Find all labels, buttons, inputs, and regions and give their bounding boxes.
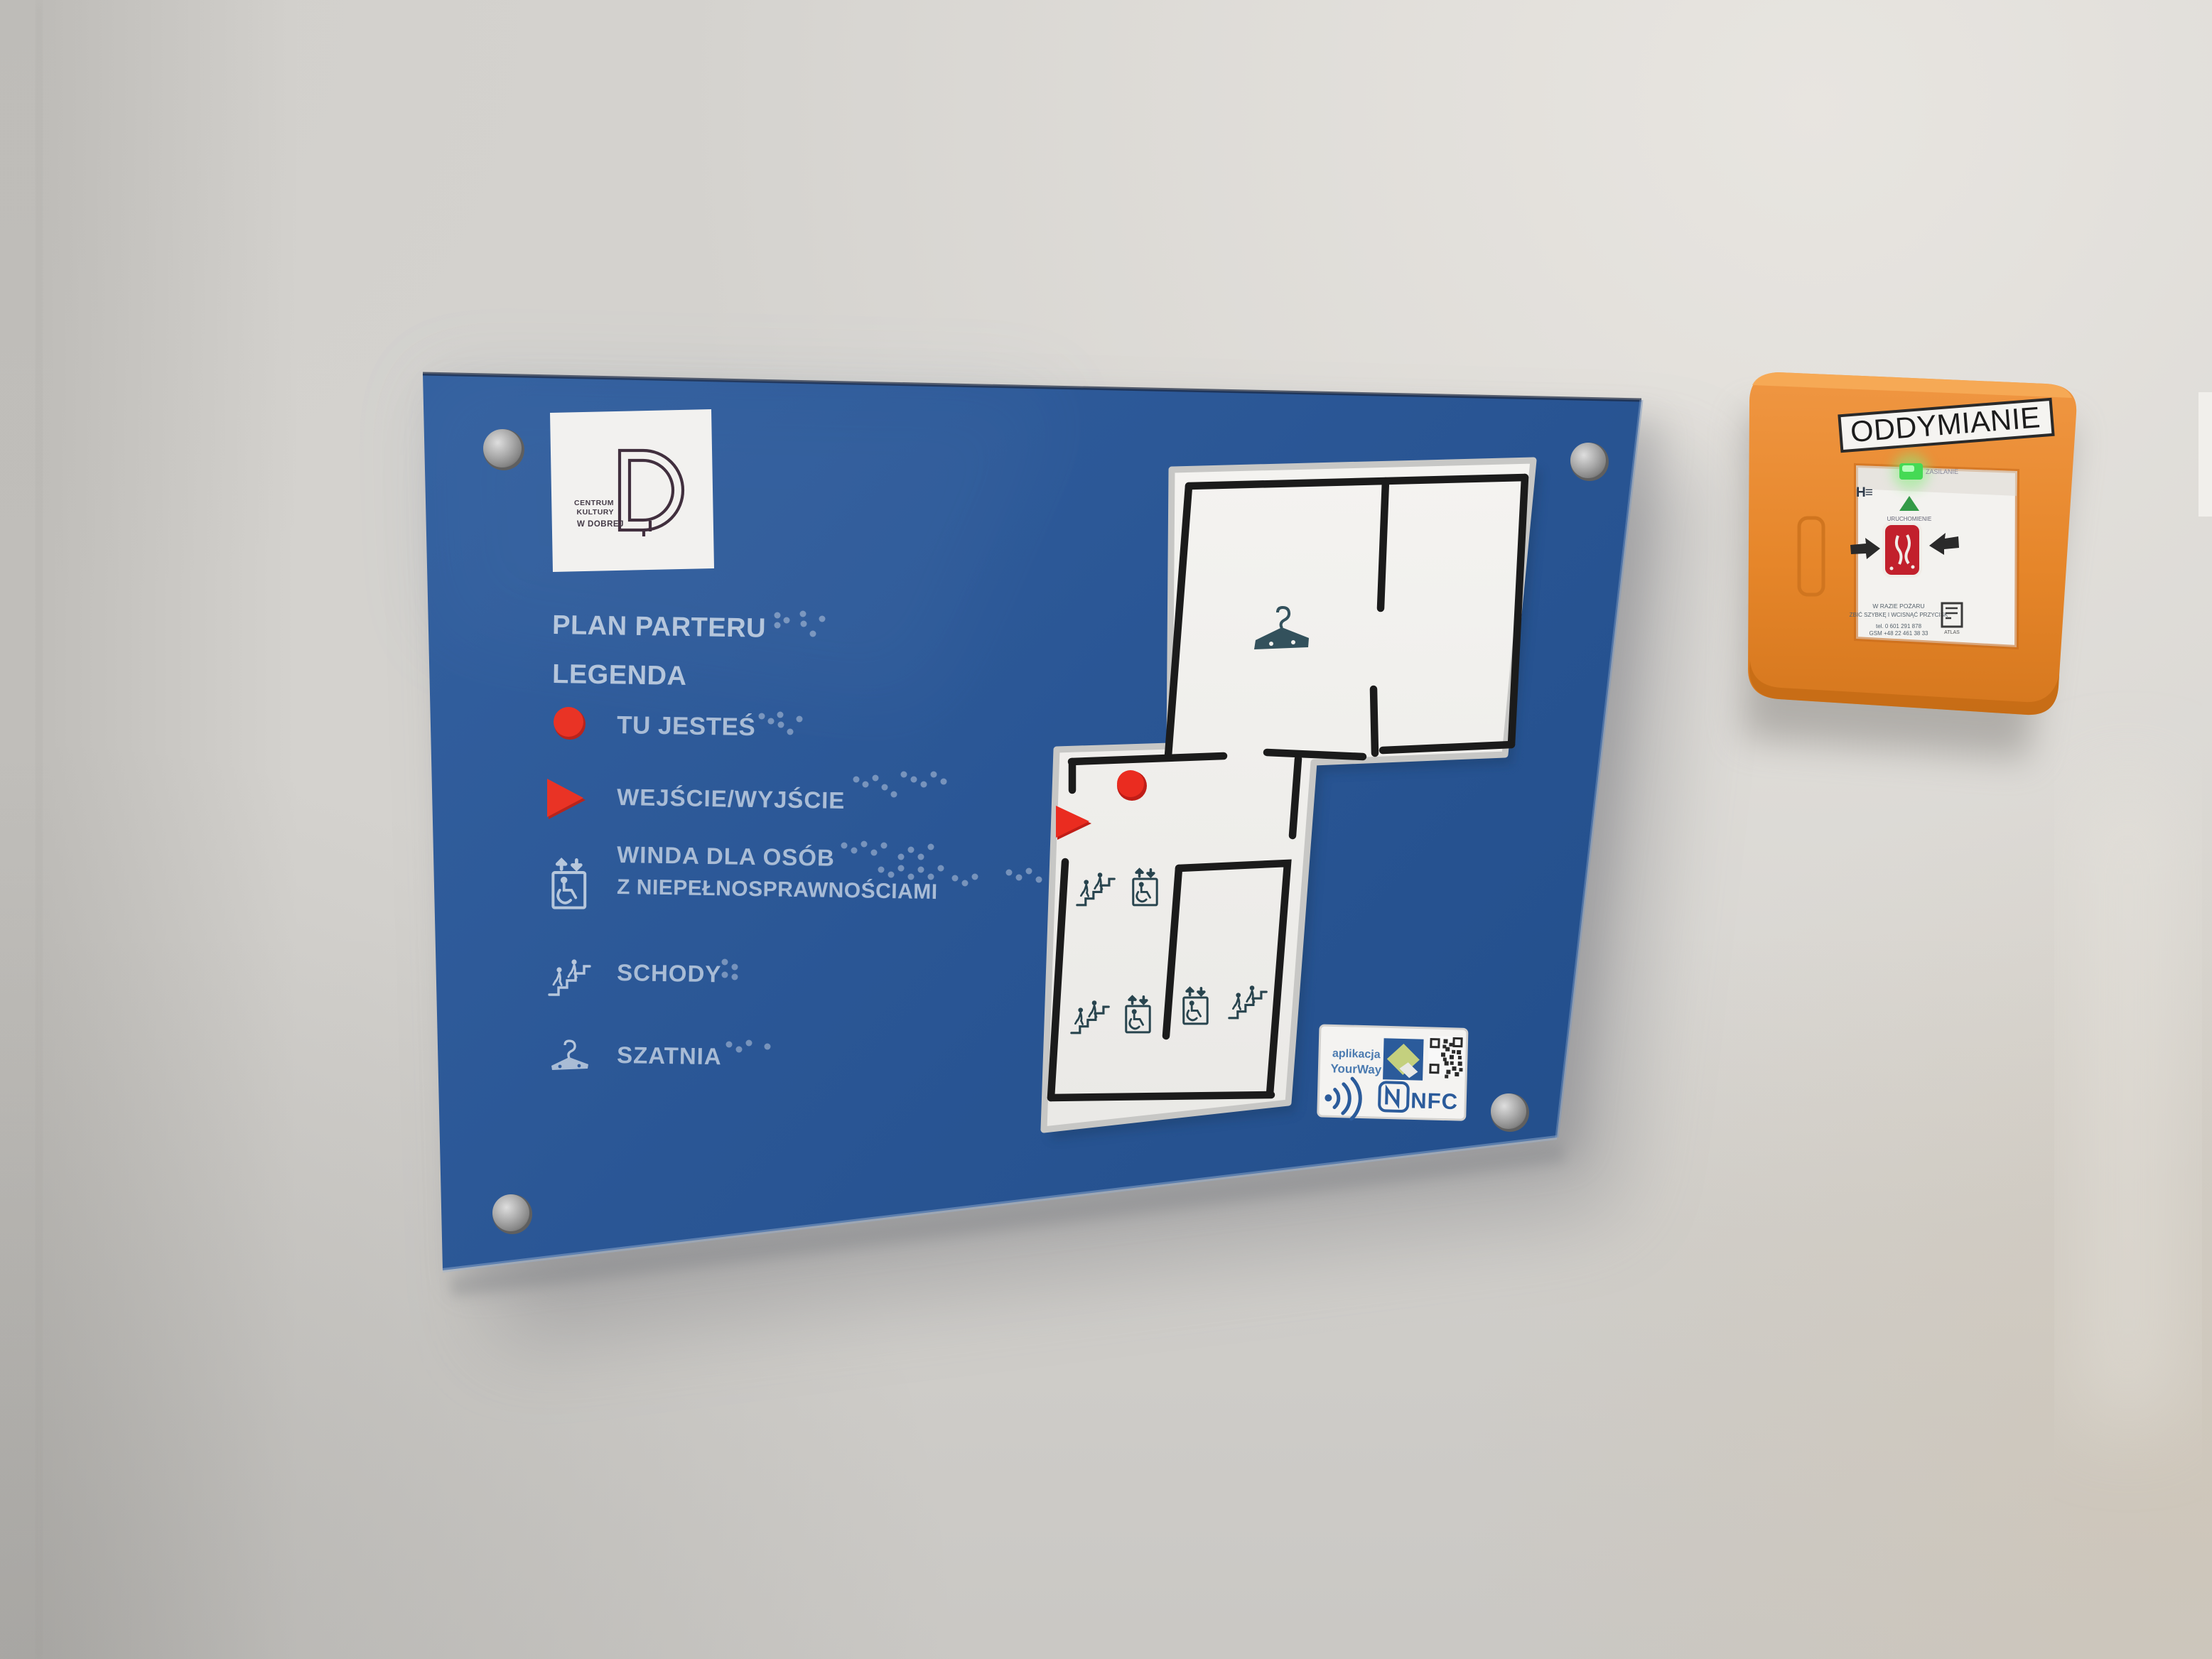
svg-text:LEGENDA: LEGENDA	[552, 659, 687, 691]
svg-text:ZASILANIE: ZASILANIE	[1926, 468, 1958, 475]
svg-text:Z NIEPEŁNOSPRAWNOŚCIAMI: Z NIEPEŁNOSPRAWNOŚCIAMI	[617, 875, 938, 904]
svg-text:KULTURY: KULTURY	[577, 508, 615, 517]
svg-text:TU JESTEŚ: TU JESTEŚ	[617, 710, 756, 741]
svg-text:SZATNIA: SZATNIA	[617, 1042, 722, 1069]
svg-text:H≡: H≡	[1856, 485, 1873, 500]
svg-text:ZBIĆ SZYBKĘ I WCISNĄĆ PRZYCISK: ZBIĆ SZYBKĘ I WCISNĄĆ PRZYCISK	[1850, 612, 1948, 618]
svg-text:NFC: NFC	[1410, 1088, 1459, 1114]
svg-text:aplikacja: aplikacja	[1332, 1047, 1381, 1061]
svg-text:PLAN PARTERU: PLAN PARTERU	[552, 610, 766, 644]
svg-text:ATLAS: ATLAS	[1944, 630, 1960, 635]
svg-text:YourWay: YourWay	[1330, 1061, 1382, 1076]
svg-text:WEJŚCIE/WYJŚCIE: WEJŚCIE/WYJŚCIE	[617, 784, 846, 814]
svg-text:SCHODY: SCHODY	[617, 959, 722, 987]
svg-text:URUCHOMIENIE: URUCHOMIENIE	[1887, 516, 1932, 522]
svg-text:CENTRUM: CENTRUM	[574, 499, 614, 507]
svg-text:GSM +48 22 461 38 33: GSM +48 22 461 38 33	[1870, 630, 1929, 637]
svg-text:tel. 0 601 291 878: tel. 0 601 291 878	[1876, 623, 1922, 629]
svg-text:W RAZIE POŻARU: W RAZIE POŻARU	[1872, 602, 1924, 610]
svg-text:WINDA DLA OSÓB: WINDA DLA OSÓB	[617, 841, 835, 871]
svg-text:W DOBREJ: W DOBREJ	[577, 520, 624, 529]
